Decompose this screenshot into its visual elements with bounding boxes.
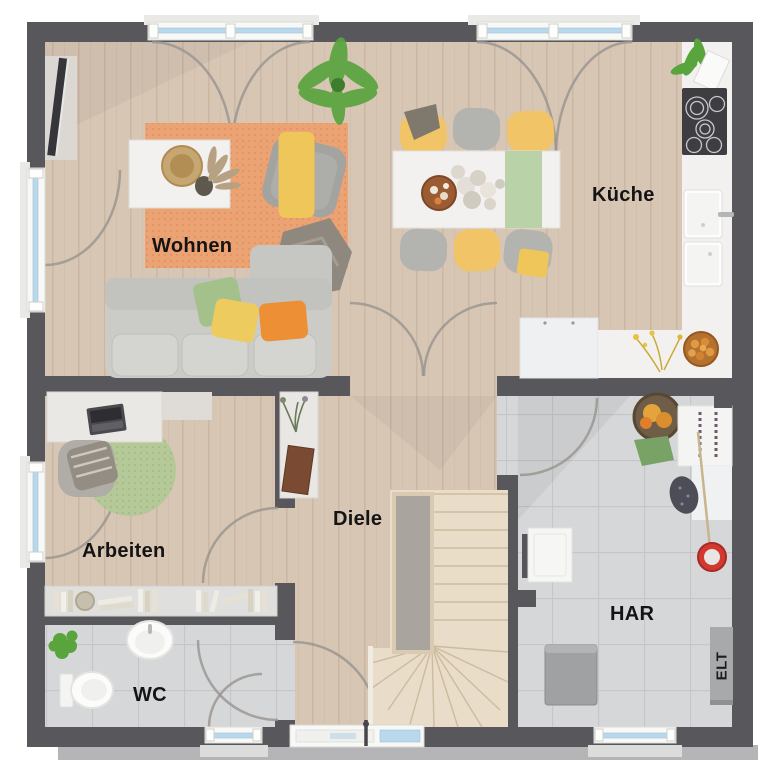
pillow-orange bbox=[258, 300, 308, 342]
hall-shelf bbox=[280, 392, 318, 498]
pillow-yellow bbox=[210, 297, 260, 343]
cooktop bbox=[682, 88, 727, 155]
seat-cushion bbox=[112, 334, 178, 376]
stair-edge bbox=[368, 646, 373, 727]
window-living-top bbox=[144, 15, 319, 40]
faucet bbox=[718, 212, 734, 217]
washing-machine bbox=[522, 528, 572, 582]
door-glass bbox=[330, 733, 356, 739]
dining-table bbox=[393, 151, 560, 228]
table-runner bbox=[505, 151, 542, 228]
elt-box: ELT bbox=[710, 627, 733, 705]
fruit-bowl bbox=[684, 332, 718, 366]
sidelight bbox=[380, 730, 420, 742]
opening-office-hall bbox=[275, 508, 295, 583]
wreath bbox=[76, 592, 94, 610]
wc-sink bbox=[127, 621, 173, 659]
room-label-diele: Diele bbox=[333, 508, 382, 530]
seat-cushion bbox=[254, 334, 316, 376]
floor-plan-drawing: ELT Wohnen Küche Arbeiten Diele WC HAR bbox=[0, 0, 775, 771]
chair-gray bbox=[399, 228, 447, 272]
yellow-cloth bbox=[516, 248, 549, 278]
room-label-arbeiten: Arbeiten bbox=[82, 540, 166, 562]
room-label-wc: WC bbox=[133, 684, 167, 706]
yellow-throw bbox=[279, 132, 315, 218]
room-label-kueche: Küche bbox=[592, 184, 655, 206]
wall-stub bbox=[518, 590, 536, 607]
room-label-elt: ELT bbox=[714, 652, 731, 681]
window-kitchen-top bbox=[468, 15, 640, 40]
desk-return bbox=[162, 392, 212, 420]
room-label-wohnen: Wohnen bbox=[152, 235, 232, 257]
chair-yellow bbox=[506, 110, 554, 153]
opening-living-hall bbox=[350, 376, 497, 396]
gray-bin bbox=[545, 645, 597, 705]
kitchen-cabinet bbox=[520, 318, 598, 378]
chair-yellow bbox=[453, 228, 500, 272]
office-chair bbox=[58, 439, 120, 497]
coffee-table bbox=[129, 140, 241, 208]
wall-stub bbox=[714, 392, 732, 408]
utility-panel bbox=[692, 466, 732, 520]
window-office-side bbox=[20, 456, 45, 568]
laptop bbox=[86, 403, 126, 435]
red-bucket bbox=[698, 543, 726, 571]
stair-well bbox=[394, 494, 432, 652]
opening-wc-hall bbox=[275, 640, 295, 720]
chair-gray bbox=[452, 107, 500, 151]
room-label-har: HAR bbox=[610, 603, 654, 625]
fruit-bowl-table bbox=[422, 176, 456, 210]
toilet bbox=[60, 672, 113, 708]
window-utility-bottom bbox=[588, 727, 682, 757]
window-wc-bottom bbox=[200, 727, 268, 757]
office-sideboard bbox=[45, 586, 277, 616]
window-living-side bbox=[20, 162, 45, 318]
opening-utility-hall bbox=[497, 396, 518, 475]
floor-plan: ELT Wohnen Küche Arbeiten Diele WC HAR bbox=[0, 0, 775, 771]
